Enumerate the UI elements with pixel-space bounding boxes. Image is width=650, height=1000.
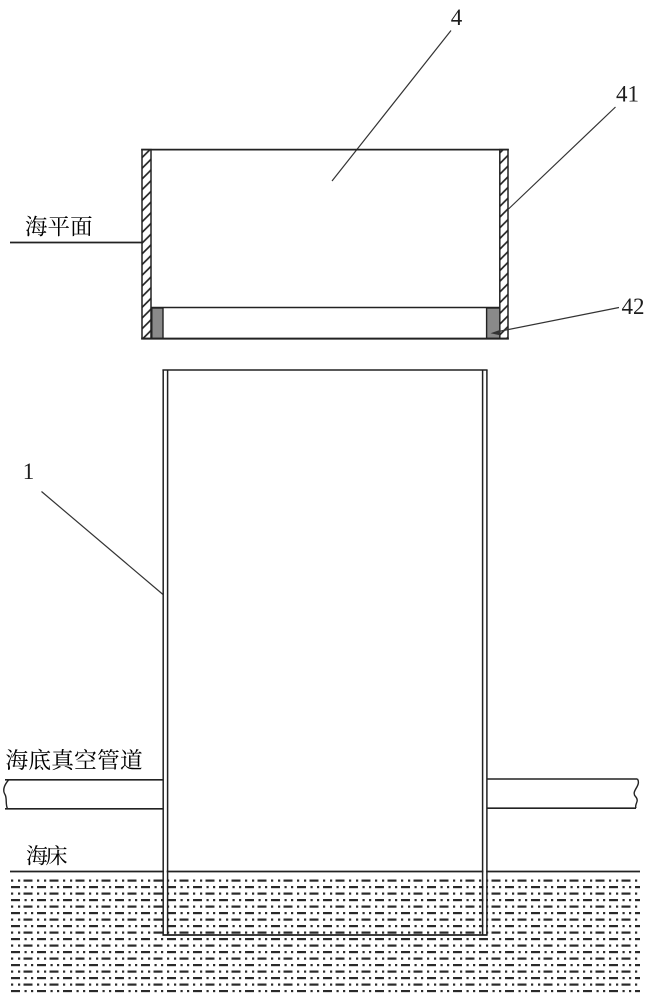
svg-text:42: 42	[622, 294, 645, 319]
svg-text:41: 41	[616, 82, 639, 107]
svg-text:4: 4	[451, 5, 463, 30]
svg-text:1: 1	[23, 459, 35, 484]
